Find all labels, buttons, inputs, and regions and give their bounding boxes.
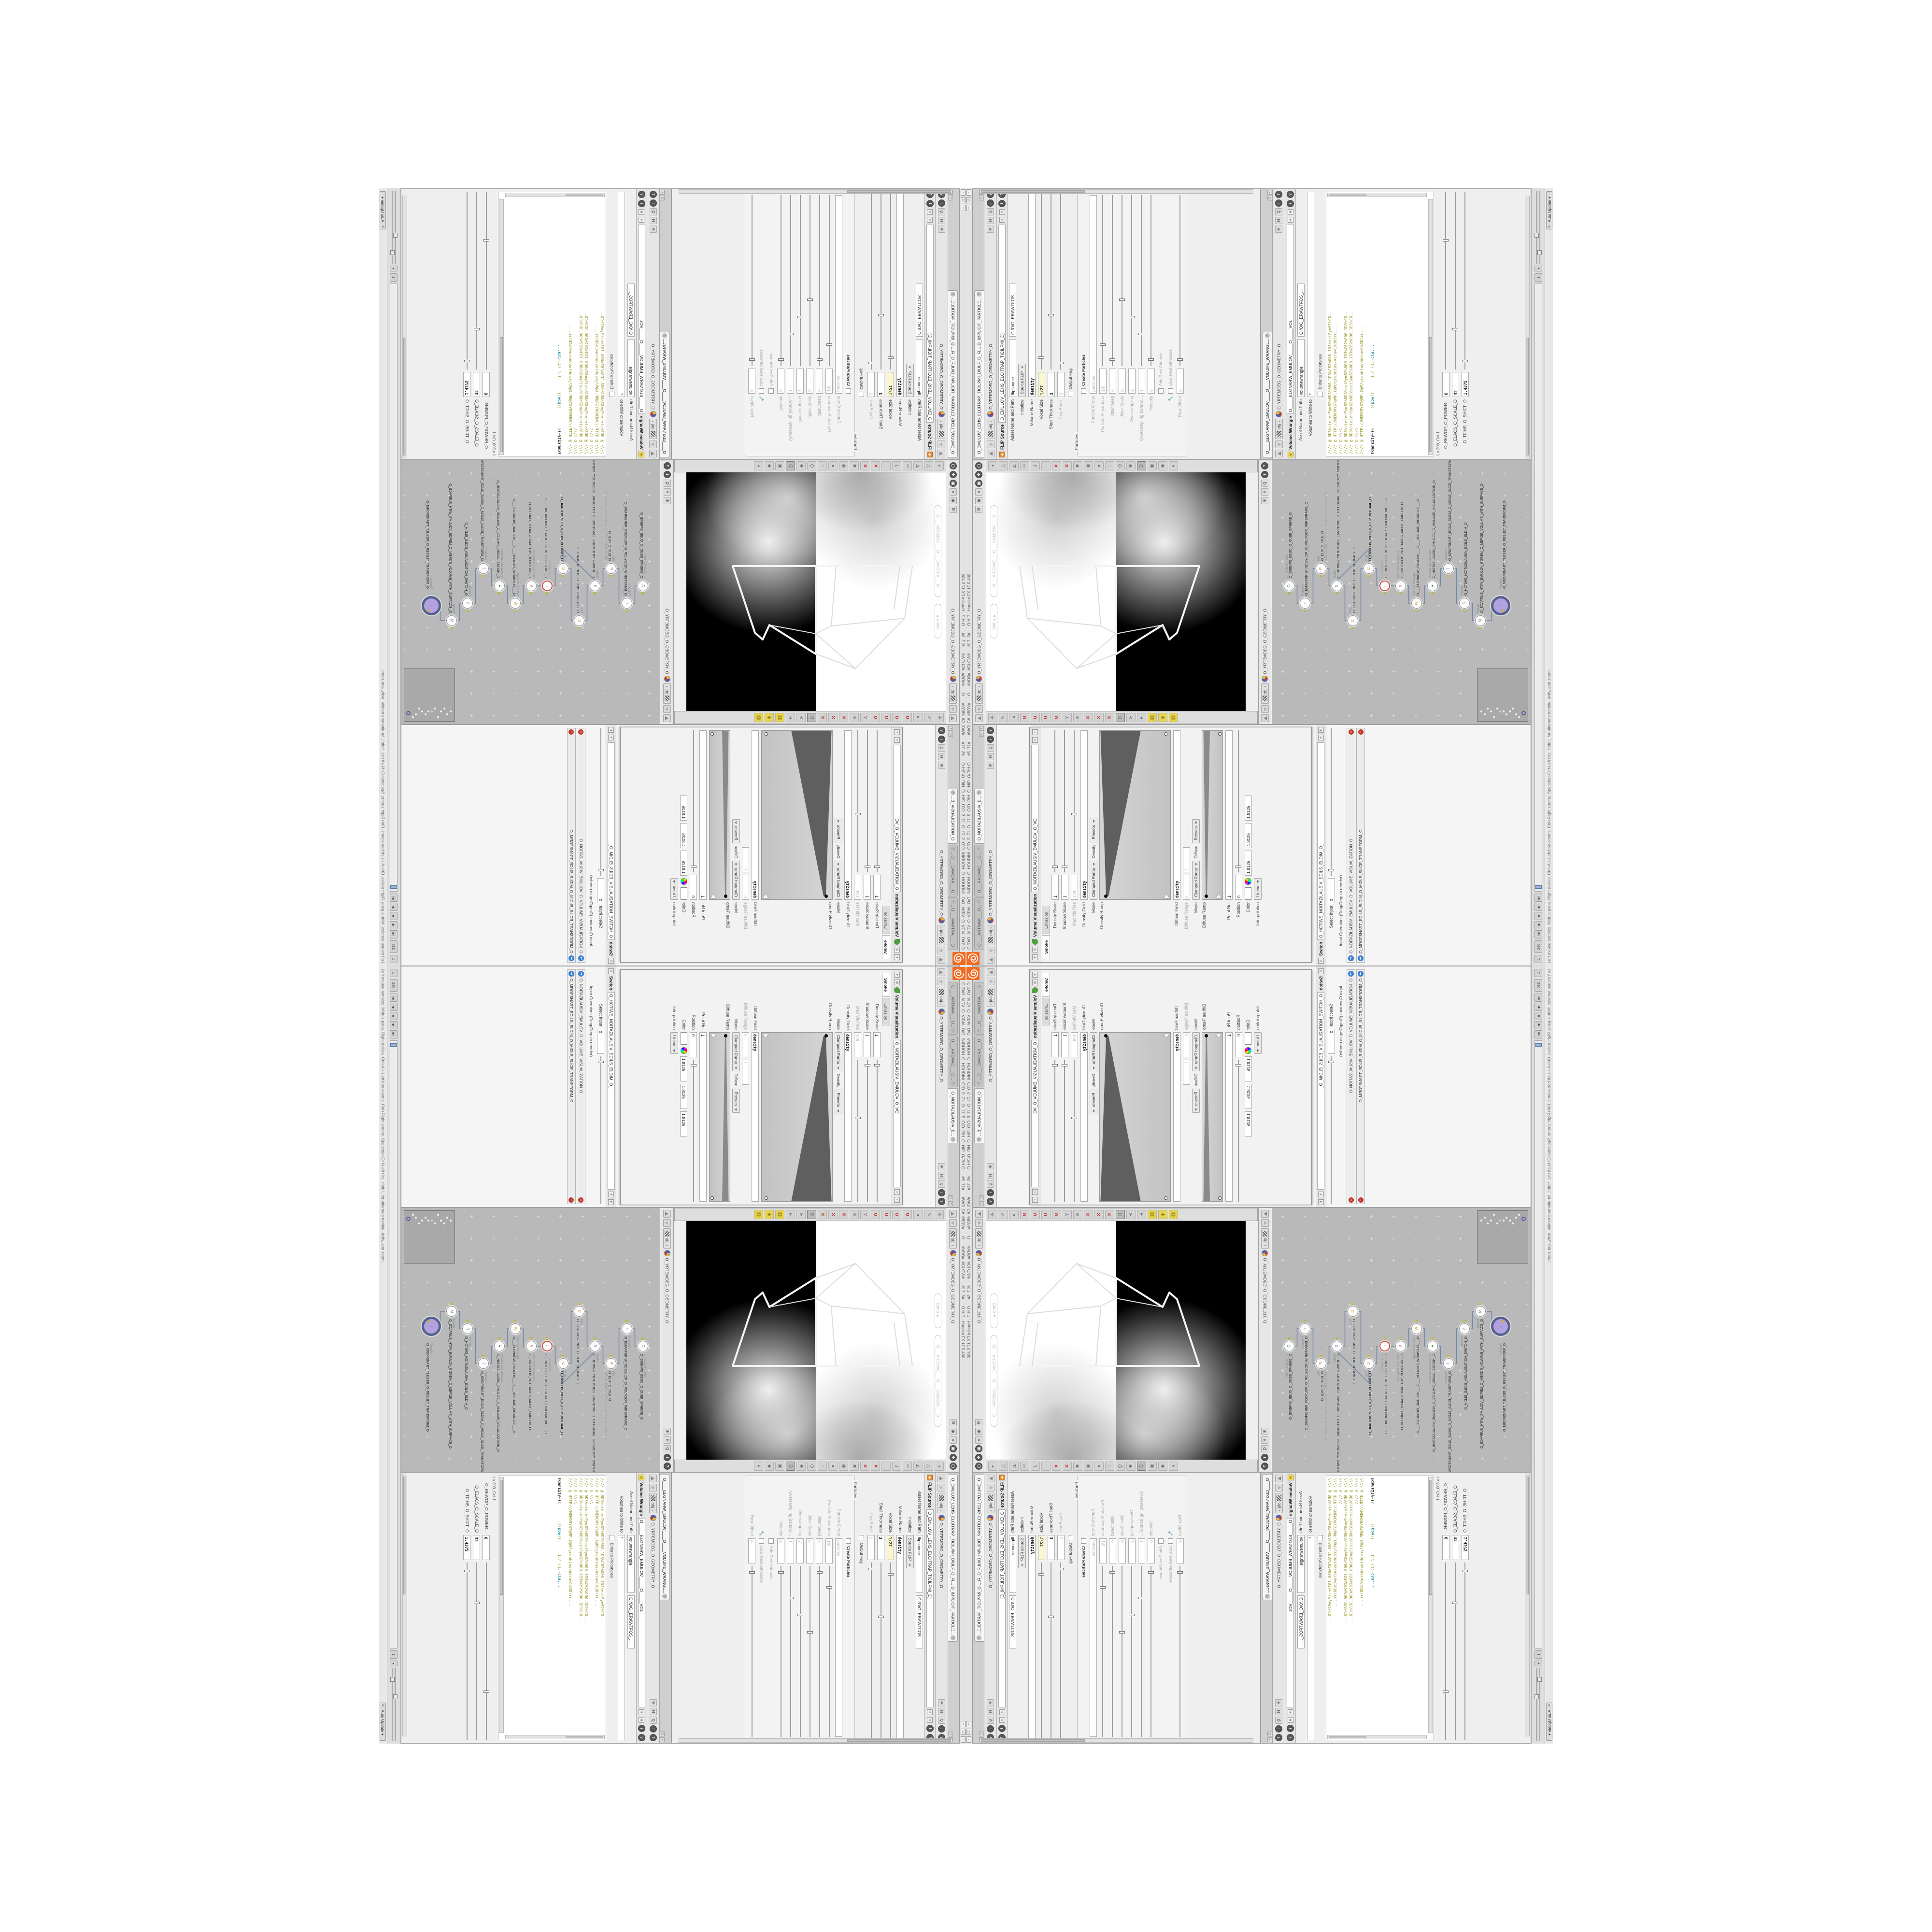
checkbox[interactable] xyxy=(610,1535,615,1540)
pane-tab-mantra[interactable]: O ___ARTNAM___O...× xyxy=(948,982,958,1035)
asset-name-field[interactable]: volumewrangle xyxy=(628,339,635,397)
slider-handle[interactable] xyxy=(1328,869,1334,871)
param-slider[interactable] xyxy=(1442,1563,1449,1740)
nav-down-icon[interactable] xyxy=(987,947,994,954)
param-select[interactable]: Linear xyxy=(1254,878,1262,900)
timeline-slider[interactable] xyxy=(1534,284,1542,892)
toolbar-icon[interactable]: ? xyxy=(664,1463,671,1470)
slider-handle[interactable] xyxy=(691,1064,696,1066)
slider-handle[interactable] xyxy=(788,1597,794,1599)
toolbar-icon[interactable]: H xyxy=(1261,488,1268,496)
network-node[interactable]: M xyxy=(1475,615,1486,626)
param-value-field[interactable]: 0 xyxy=(1109,1538,1116,1563)
view-mode-pill[interactable]: Ortho ▾ xyxy=(935,1293,941,1328)
asset-path-field[interactable]: C:/O/O_ERAWTFOS_... xyxy=(628,284,635,337)
toolbar-icon[interactable]: ✳ xyxy=(1261,1428,1268,1435)
param-slider[interactable] xyxy=(483,192,490,369)
pane-split-icon[interactable]: ◫ xyxy=(979,732,984,737)
vv-window-header[interactable]: ▾ ⊞ Volume Visualization O_NOITAZILAUSIV… xyxy=(1030,970,1040,1205)
slider-handle[interactable] xyxy=(797,316,803,318)
nav-up-icon[interactable] xyxy=(1261,1210,1269,1218)
viewport-tool-icon[interactable]: ➤ xyxy=(1126,1210,1136,1219)
param-slider[interactable] xyxy=(1128,1566,1135,1737)
ramp-editor[interactable] xyxy=(1099,1032,1171,1202)
param-slider[interactable] xyxy=(868,192,875,369)
geometry-node-name[interactable]: O_YRTEMOEG_O_GEOMETRY_O xyxy=(665,1258,670,1323)
pane-tab-visualization[interactable]: O_NOITAZILAUSIV_E...× xyxy=(974,1088,984,1143)
nav-up-icon[interactable] xyxy=(664,714,671,722)
viewport-tool-icon[interactable]: ✕ xyxy=(1084,713,1093,722)
param-value-field[interactable]: 32 xyxy=(473,372,481,397)
pane-tab-camera[interactable]: O___AREMAC___O...× xyxy=(974,1036,984,1087)
toolbar-icon[interactable]: H xyxy=(938,1172,945,1179)
toolbar-icon[interactable]: i xyxy=(987,1725,994,1733)
collapse-icon[interactable]: ▾ xyxy=(1032,954,1038,960)
nav-up-icon[interactable] xyxy=(650,450,657,457)
toolbar-icon[interactable]: i xyxy=(650,199,657,207)
geometry-node-name[interactable]: O_YRTEMOEG_O_GEOMETRY_O xyxy=(977,1258,981,1323)
network-node[interactable]: ● xyxy=(494,581,505,591)
transport-button[interactable]: ▶| xyxy=(390,1030,398,1038)
param-value-field[interactable]: 0 xyxy=(868,1535,875,1560)
slider-handle[interactable] xyxy=(1328,1061,1334,1063)
info-icon[interactable]: i xyxy=(926,1725,934,1732)
toolbar-icon[interactable]: ▢ xyxy=(975,1463,982,1470)
param-slider[interactable] xyxy=(597,1056,604,1204)
color-wheel-icon[interactable] xyxy=(1245,1047,1251,1054)
nav-up-icon[interactable] xyxy=(987,956,994,964)
nav-down-icon[interactable] xyxy=(1261,705,1269,713)
param-slider[interactable] xyxy=(826,195,833,366)
viewport-tool-icon[interactable]: ▸ xyxy=(754,1462,763,1471)
param-value-field[interactable]: 1.4375 xyxy=(464,372,471,397)
viewport-tool-icon[interactable]: D xyxy=(786,461,795,470)
nav-down-icon[interactable] xyxy=(1275,440,1283,448)
code-hscrollbar[interactable] xyxy=(1428,199,1433,455)
param-value-field[interactable]: 2 xyxy=(797,369,804,394)
network-node[interactable]: T xyxy=(478,563,489,574)
ramp-point-handle[interactable] xyxy=(1205,1034,1208,1037)
checkbox[interactable] xyxy=(1068,392,1073,397)
param-value-field[interactable]: 1.4375 xyxy=(1462,372,1469,397)
toolbar-icon[interactable]: ✳ xyxy=(1275,1699,1282,1706)
pane-menu-icon[interactable]: ▾ xyxy=(979,1201,984,1206)
ramp-point-handle[interactable] xyxy=(724,1034,727,1037)
switch-name-field[interactable]: O_HCTIWS_NOITAZILAUSIV_ECILS_ELDIM_O_ xyxy=(1317,742,1324,940)
toolbar-icon[interactable]: ✳ xyxy=(664,497,671,504)
toolbar-icon[interactable]: ✳ xyxy=(987,1163,994,1170)
viewport-tool-icon[interactable]: ✹ xyxy=(850,461,859,470)
network-canvas[interactable]: ++++++++++++++ ++++++++++++++ ++++++++++… xyxy=(401,460,660,724)
param-slider[interactable] xyxy=(797,1566,804,1737)
viewport-tool-icon[interactable]: ⚷ xyxy=(892,461,901,470)
network-canvas[interactable]: ++++++++++++++ ++++++++++++++ ++++++++++… xyxy=(1272,1208,1531,1472)
param-slider[interactable] xyxy=(1462,192,1468,369)
viewport-tool-icon[interactable]: ✕ xyxy=(871,461,880,470)
network-node[interactable]: T xyxy=(422,596,441,615)
param-slider[interactable] xyxy=(1061,1060,1068,1202)
nav-down-icon[interactable] xyxy=(950,1219,957,1227)
toolbar-icon[interactable]: ◉ xyxy=(975,1428,982,1435)
toolbar-icon[interactable]: Q xyxy=(650,1717,657,1724)
checkbox[interactable] xyxy=(859,392,865,397)
param-slider[interactable] xyxy=(787,1566,794,1737)
toolbar-icon[interactable]: ? xyxy=(650,191,657,198)
viewport-tool-icon[interactable]: ✹ xyxy=(796,461,806,470)
toolbar-icon[interactable]: i xyxy=(1275,1725,1282,1733)
geometry-node-name[interactable]: O_YRTEMOEG_O_GEOMETRY_O xyxy=(939,1522,944,1588)
obj-breadcrumb[interactable]: obj› xyxy=(950,683,957,704)
nav-down-icon[interactable] xyxy=(987,978,994,985)
toolbar-icon[interactable]: ❖ xyxy=(950,471,957,478)
param-slider[interactable] xyxy=(778,1566,784,1737)
obj-breadcrumb[interactable]: obj› xyxy=(650,419,657,439)
slider-handle[interactable] xyxy=(1109,1571,1115,1574)
collapse-icon[interactable]: ▾ xyxy=(1032,972,1038,978)
param-value-field[interactable]: 0 xyxy=(1328,1029,1335,1054)
input-operator-row[interactable]: ➔O_MROFSNART_ECILS_ELDIM_O_MIDLE_SLICE_T… xyxy=(567,969,576,1204)
toolbar-icon[interactable]: ? xyxy=(1261,1463,1268,1470)
viewport-tool-icon[interactable]: ◭ xyxy=(1009,1462,1019,1471)
param-value-field[interactable]: 0 xyxy=(1177,1538,1184,1563)
network-node[interactable]: W xyxy=(1411,598,1422,609)
code-hscrollbar[interactable] xyxy=(499,1477,504,1733)
param-slider[interactable] xyxy=(797,195,804,366)
wrangle-scrollbar[interactable] xyxy=(1525,1474,1530,1736)
toolbar-icon[interactable]: i xyxy=(938,199,945,207)
timeline-slider[interactable] xyxy=(390,284,398,892)
slider-handle[interactable] xyxy=(778,1571,784,1574)
param-value-field[interactable]: 128 xyxy=(854,875,862,900)
pane-split-icon[interactable]: ◫ xyxy=(979,1195,984,1200)
asset-name-field[interactable]: flipsource xyxy=(916,1535,923,1593)
checkbox[interactable] xyxy=(769,1538,774,1544)
playhead[interactable] xyxy=(391,885,398,889)
toolbar-icon[interactable]: ❖ xyxy=(975,1454,982,1461)
toolbar-icon[interactable]: Q xyxy=(987,208,994,215)
current-frame-field[interactable]: 1 xyxy=(1534,1650,1542,1659)
viewport-tool-icon[interactable]: ∪ xyxy=(1031,713,1040,722)
toolbar-icon[interactable]: Q xyxy=(938,1717,945,1724)
toolbar-icon[interactable]: ❖ xyxy=(975,471,982,478)
param-value-field[interactable]: density xyxy=(897,192,904,397)
viewport-tool-icon[interactable]: ✕ xyxy=(871,1462,880,1471)
toolbar-icon[interactable]: i xyxy=(1261,471,1268,478)
viewport-tool-icon[interactable]: ∪ xyxy=(871,1210,880,1219)
switch-name-field[interactable]: O_HCTIWS_NOITAZILAUSIV_ECILS_ELDIM_O_ xyxy=(1317,992,1324,1190)
param-value-field[interactable]: 0 xyxy=(1177,369,1184,394)
param-slider[interactable] xyxy=(807,195,813,366)
toolbar-icon[interactable]: i xyxy=(938,736,945,743)
nav-up-icon[interactable] xyxy=(938,1475,946,1482)
pin-icon[interactable]: ⊞ xyxy=(895,980,900,985)
presets-button[interactable]: Presets xyxy=(1192,819,1200,843)
slider-handle[interactable] xyxy=(1052,1064,1058,1066)
toolbar-icon[interactable]: Q xyxy=(664,480,671,487)
slider-handle[interactable] xyxy=(1148,1571,1154,1574)
close-window-icon[interactable]: × xyxy=(895,737,900,743)
transport-button[interactable]: ▶ xyxy=(1534,903,1542,911)
nav-down-icon[interactable] xyxy=(938,978,946,985)
viewport-tool-icon[interactable]: ▥ xyxy=(1169,713,1178,722)
viewport-tool-icon[interactable]: ▸ xyxy=(1137,713,1146,722)
presets-button[interactable]: Presets xyxy=(1090,818,1097,842)
viewport-tool-icon[interactable]: ✹ xyxy=(1126,1462,1136,1471)
param-slider[interactable] xyxy=(1452,1563,1459,1740)
asset-path-field[interactable]: C:/O/O_ERAWTFOS_... xyxy=(1009,1595,1016,1648)
viewport-canvas[interactable]: Ortho ▾ O___AREMAC___O___CAMERA___O xyxy=(986,1221,1246,1460)
slider-handle[interactable] xyxy=(1038,1573,1044,1576)
toolbar-icon[interactable]: ● xyxy=(950,488,957,496)
param-value-field[interactable]: 1.8125 xyxy=(1245,796,1252,821)
viewport-tool-icon[interactable]: D xyxy=(807,1210,816,1219)
param-value-field[interactable]: 0 xyxy=(1148,1538,1155,1563)
pane-menu-icon[interactable]: ▾ xyxy=(660,190,665,195)
param-value-field[interactable]: 0 xyxy=(749,1538,756,1563)
viewport-tool-icon[interactable]: ▣ xyxy=(1148,1462,1157,1471)
close-button[interactable]: × xyxy=(966,189,971,196)
viewport-tool-icon[interactable]: ◆ xyxy=(765,461,774,470)
obj-breadcrumb[interactable]: obj› xyxy=(664,683,671,704)
color-swatch[interactable] xyxy=(681,1032,687,1045)
param-slider[interactable] xyxy=(690,730,697,872)
network-node[interactable]: W xyxy=(1411,1323,1422,1334)
network-node[interactable]: S xyxy=(462,598,473,609)
pane-tab-flip[interactable]: O_EMULOV_LEHS_ELCITRAP_TICILPMI_DIULF_O_… xyxy=(974,1475,984,1642)
slider-handle[interactable] xyxy=(1129,1614,1135,1616)
playback-sliders[interactable] xyxy=(1536,191,1540,264)
pane-menu-icon[interactable]: ▾ xyxy=(660,1737,665,1742)
flip-name-field[interactable]: O_EMULOV_LEHS_ELCITRAP_TICILPMI_D] xyxy=(926,225,934,423)
houdini-h-icon[interactable]: H xyxy=(1318,1199,1324,1205)
toolbar-icon[interactable]: Q xyxy=(938,1180,945,1188)
network-node[interactable]: V xyxy=(526,1341,537,1351)
toolbar-icon[interactable]: ❖ xyxy=(950,1454,957,1461)
input-operator-row[interactable]: ➔O_MROFSNART_ECILS_ELDIM_O_MIDLE_SLICE_T… xyxy=(1356,969,1365,1204)
param-value-field[interactable]: 32 xyxy=(1452,372,1459,397)
viewport-tool-icon[interactable]: ✕ xyxy=(1052,1462,1061,1471)
viewport-tool-icon[interactable]: ▣ xyxy=(775,461,784,470)
tab-emission[interactable]: Emission xyxy=(1042,907,1050,934)
nav-down-icon[interactable] xyxy=(650,1484,657,1492)
vex-code-editor[interactable]: //// @ 0D3%steserPym62%0D3%000.1D3%C62%0… xyxy=(1326,1476,1434,1740)
remove-operator-icon[interactable]: × xyxy=(579,1197,584,1203)
ramp-point-handle[interactable] xyxy=(824,1034,828,1037)
viewport-tool-icon[interactable]: ✕ xyxy=(1063,1462,1072,1471)
gear-icon[interactable]: ✳ xyxy=(639,1709,645,1715)
toolbar-icon[interactable]: ? xyxy=(987,727,994,734)
viewport-tool-icon[interactable]: ∪ xyxy=(1052,1210,1061,1219)
nav-up-icon[interactable] xyxy=(987,1475,994,1482)
viewport-tool-icon[interactable]: ✇ xyxy=(988,1210,997,1219)
geometry-node-name[interactable]: O_YRTEMOEG_O_GEOMETRY_O xyxy=(988,344,993,410)
network-node[interactable]: C xyxy=(558,1358,568,1369)
geometry-node-name[interactable]: O_YRTEMOEG_O_GEOMETRY_O xyxy=(988,850,993,916)
vv-window-header[interactable]: ▾ ⊞ Volume Visualization O_NOITAZILAUSIV… xyxy=(1030,727,1040,962)
viewport-tool-icon[interactable]: ✕ xyxy=(828,1210,838,1219)
network-node[interactable]: V xyxy=(1395,1341,1406,1351)
toolbar-icon[interactable]: ● xyxy=(975,488,982,496)
param-slider[interactable] xyxy=(464,192,470,369)
param-slider[interactable] xyxy=(1328,1056,1335,1204)
toolbar-icon[interactable]: ✳ xyxy=(987,762,994,769)
toolbar-icon[interactable]: ✳ xyxy=(664,1428,671,1435)
mode-select[interactable]: Clamped Ramp xyxy=(835,861,842,900)
viewport-tool-icon[interactable]: ▸ xyxy=(786,713,795,722)
network-node[interactable]: T xyxy=(1491,596,1510,615)
info-icon[interactable]: i xyxy=(926,200,934,207)
transport-button[interactable]: ◀ xyxy=(1534,1003,1542,1011)
viewport-tool-icon[interactable]: ◂ xyxy=(1009,1210,1019,1219)
slider-handle[interactable] xyxy=(1062,1064,1067,1066)
transport-button[interactable]: |◀ xyxy=(390,930,398,938)
pane-tab-wrangle[interactable]: O____ELGNARW_EMULOV____O____VOLUME_WRANG… xyxy=(1263,332,1272,457)
network-node[interactable]: T xyxy=(422,1317,441,1336)
param-slider[interactable] xyxy=(816,1566,823,1737)
pane-tab-mantra[interactable]: O ___ARTNAM___O...× xyxy=(974,897,984,950)
slider-handle[interactable] xyxy=(1048,314,1054,316)
pin-icon[interactable]: ⊞ xyxy=(1032,947,1038,952)
transport-button[interactable]: ▶| xyxy=(1534,894,1542,902)
transport-button[interactable]: ▶| xyxy=(390,894,398,902)
input-operator-row[interactable]: ➔O_NOITAZILAUSIV_EMULOV_O_VOLUME_VISUALI… xyxy=(577,728,585,963)
pane-tab-camera[interactable]: O___AREMAC___O...× xyxy=(948,845,958,896)
param-select[interactable]: Source FLIP xyxy=(906,364,914,397)
slider-handle[interactable] xyxy=(878,314,884,316)
param-value-field[interactable]: 1.8125 xyxy=(1245,1056,1252,1081)
toolbar-icon[interactable]: ✳ xyxy=(938,226,945,233)
param-slider[interactable] xyxy=(816,195,823,366)
param-slider[interactable] xyxy=(826,1566,833,1737)
toolbar-icon[interactable]: ✳ xyxy=(650,226,657,233)
viewport-tool-icon[interactable]: ▸ xyxy=(754,461,763,470)
ramp-point-handle[interactable] xyxy=(710,732,714,736)
ramp-point-handle[interactable] xyxy=(1218,732,1222,736)
viewport-tool-icon[interactable]: ✕ xyxy=(860,461,869,470)
pane-split-icon[interactable]: ◫ xyxy=(948,732,953,737)
viewport-tool-icon[interactable]: ∪ xyxy=(1020,1210,1029,1219)
help-icon[interactable]: ? xyxy=(1287,191,1294,198)
viewport-tool-icon[interactable]: ✎ xyxy=(999,1210,1008,1219)
viewport-tool-icon[interactable]: ▥ xyxy=(754,713,763,722)
detach-icon[interactable]: + xyxy=(1032,1197,1038,1203)
network-node[interactable]: W xyxy=(510,1323,521,1334)
viewport-tool-icon[interactable]: ✹ xyxy=(850,1462,859,1471)
info-icon[interactable]: i xyxy=(638,200,645,207)
geometry-node-name[interactable]: O_YRTEMOEG_O_GEOMETRY_O xyxy=(665,609,670,674)
param-value-field[interactable]: 2 xyxy=(1128,1538,1136,1563)
param-value-field[interactable]: 32 xyxy=(1452,1535,1459,1560)
viewport-tool-icon[interactable]: ◂ xyxy=(913,713,923,722)
view-mode-pill[interactable]: Ortho ▾ xyxy=(991,1293,997,1328)
param-value-field[interactable]: 0 xyxy=(1119,1538,1126,1563)
toolbar-icon[interactable]: ✳ xyxy=(987,226,994,233)
param-slider[interactable] xyxy=(878,192,884,369)
vv-window-header[interactable]: ▾ ⊞ Volume Visualization O_NOITAZILAUSIV… xyxy=(892,970,902,1205)
nav-down-icon[interactable] xyxy=(950,705,957,713)
playhead[interactable] xyxy=(391,1043,398,1047)
toolbar-icon[interactable]: Q xyxy=(664,1445,671,1452)
network-node[interactable]: C xyxy=(1348,615,1358,626)
transport-button[interactable]: |◀ xyxy=(1534,994,1542,1002)
transport-button[interactable]: ◀ xyxy=(1534,921,1542,929)
viewport-tool-icon[interactable]: ✹ xyxy=(1073,1462,1082,1471)
geometry-node-name[interactable]: O_YRTEMOEG_O_GEOMETRY_O xyxy=(939,1016,944,1082)
gear-icon[interactable]: ✳ xyxy=(999,217,1005,223)
param-value-field[interactable]: * xyxy=(618,1535,625,1740)
nav-up-icon[interactable] xyxy=(664,1210,671,1218)
checkbox[interactable] xyxy=(1158,388,1164,394)
vv-name-field[interactable]: O_NOITAZILAUSIV_EMULOV_O_VO xyxy=(1031,1040,1038,1187)
slider-handle[interactable] xyxy=(1177,358,1183,361)
param-value-field[interactable]: 1.8125 xyxy=(1245,851,1252,876)
tab-smoke[interactable]: Smoke xyxy=(882,935,890,959)
pane-menu-icon[interactable]: ▾ xyxy=(948,1201,953,1206)
network-node[interactable]: F xyxy=(1316,1358,1326,1369)
slider-handle[interactable] xyxy=(598,869,604,871)
viewport-tool-icon[interactable]: ∪ xyxy=(903,713,912,722)
toolbar-icon[interactable]: H xyxy=(1275,1708,1282,1715)
asset-name-field[interactable]: volumewrangle xyxy=(628,1535,635,1593)
toolbar-icon[interactable]: H xyxy=(938,217,945,224)
param-value-field[interactable]: 1 xyxy=(1225,730,1233,900)
toolbar-icon[interactable]: H xyxy=(987,753,994,760)
viewport-tool-icon[interactable]: ✕ xyxy=(818,1210,827,1219)
info-icon[interactable]: i xyxy=(1287,200,1294,207)
current-frame-field[interactable]: 1 xyxy=(390,1650,398,1659)
reorder-arrow-icon[interactable]: ➔ xyxy=(1358,955,1364,961)
param-value-field[interactable]: 1 xyxy=(742,847,750,872)
nav-up-icon[interactable] xyxy=(938,450,946,457)
slider-handle[interactable] xyxy=(1138,333,1144,335)
param-value-field[interactable]: 1 xyxy=(700,730,707,900)
viewport-tool-icon[interactable]: △ xyxy=(999,1462,1008,1471)
param-value-field[interactable]: 1/27 xyxy=(887,372,895,397)
viewport-tool-icon[interactable]: ✕ xyxy=(1084,1210,1093,1219)
obj-breadcrumb[interactable]: obj› xyxy=(975,1228,983,1249)
network-node[interactable]: ◌ xyxy=(542,581,553,591)
viewport-tool-icon[interactable]: ✎ xyxy=(924,1210,933,1219)
pane-tab-visualization[interactable]: O_NOITAZILAUSIV_E...× xyxy=(974,789,984,844)
transport-button[interactable]: ■ xyxy=(1534,1012,1542,1020)
toolbar-icon[interactable]: ⚒ xyxy=(975,1419,982,1426)
toolbar-icon[interactable]: ▣ xyxy=(950,1445,957,1452)
param-value-field[interactable]: density xyxy=(1173,1032,1180,1202)
obj-breadcrumb[interactable]: obj› xyxy=(950,1228,957,1249)
pane-split-icon[interactable]: ◫ xyxy=(1267,1732,1272,1736)
toolbar-icon[interactable]: ? xyxy=(938,1198,945,1205)
slider-handle[interactable] xyxy=(464,360,470,362)
viewport-tool-icon[interactable]: ✇ xyxy=(935,1210,944,1219)
param-slider[interactable] xyxy=(1328,728,1335,876)
param-value-field[interactable]: 0 xyxy=(1328,878,1335,903)
color-swatch[interactable] xyxy=(681,887,687,900)
param-slider[interactable] xyxy=(874,1060,881,1202)
param-slider[interactable] xyxy=(1038,1563,1045,1740)
minimize-button[interactable]: – xyxy=(966,1721,971,1727)
param-select[interactable]: Source FLIP xyxy=(906,1535,914,1568)
param-slider[interactable] xyxy=(787,195,794,366)
slider-handle[interactable] xyxy=(807,1631,813,1634)
param-value-field[interactable]: 6 xyxy=(1442,372,1449,397)
presets-button[interactable]: Presets xyxy=(732,819,740,843)
param-value-field[interactable]: 1.4375 xyxy=(464,1535,471,1560)
maximize-button[interactable]: ▢ xyxy=(961,1729,966,1735)
network-node[interactable]: F xyxy=(606,563,616,574)
viewport-tool-icon[interactable]: Q xyxy=(1116,461,1125,470)
param-value-field[interactable]: density xyxy=(897,1535,904,1740)
reorder-arrow-icon[interactable]: ➔ xyxy=(1348,955,1354,961)
